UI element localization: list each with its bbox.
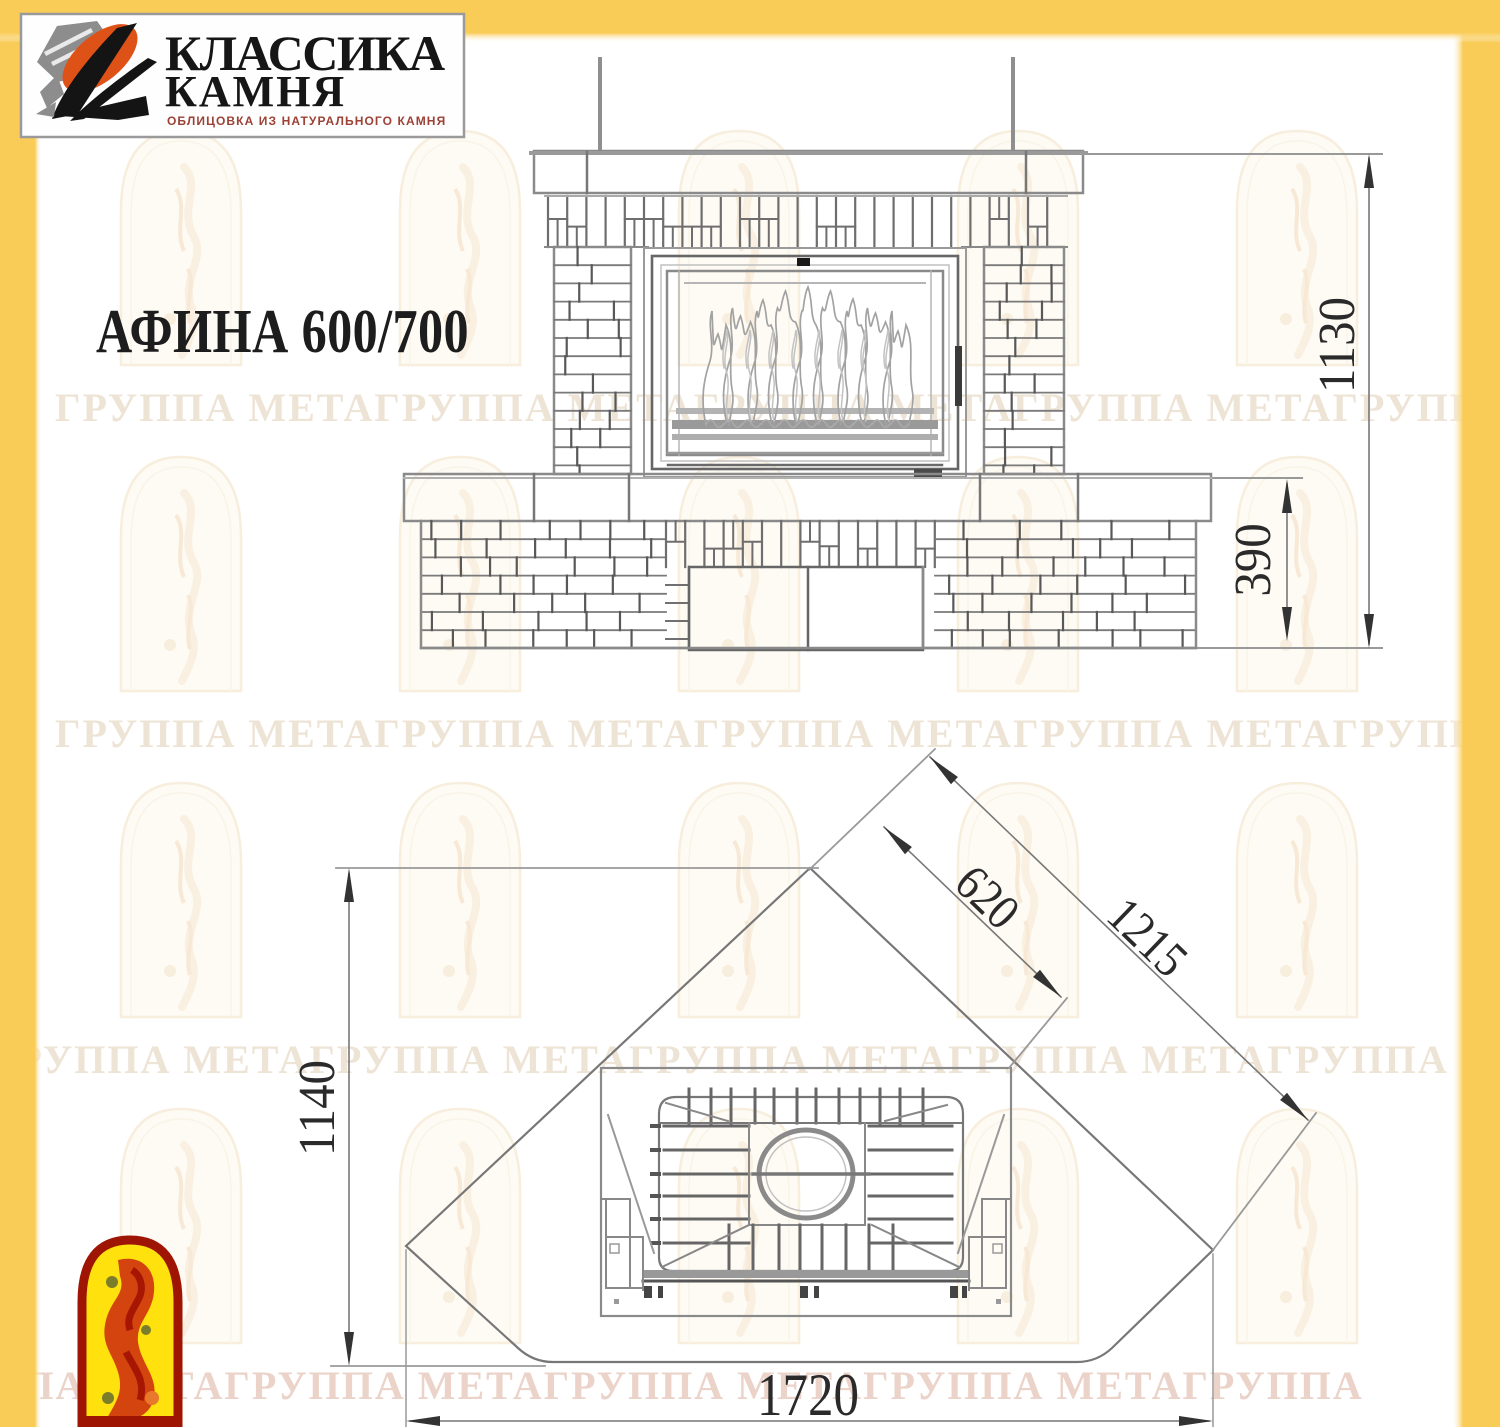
svg-text:1140: 1140 [288, 1060, 346, 1156]
svg-text:КАМНЯ: КАМНЯ [165, 67, 346, 116]
svg-text:1130: 1130 [1308, 297, 1366, 393]
svg-text:ОБЛИЦОВКА ИЗ НАТУРАЛЬНОГО КАМН: ОБЛИЦОВКА ИЗ НАТУРАЛЬНОГО КАМНЯ [167, 114, 446, 128]
svg-text:ГРУППА МЕТАГРУППА МЕТАГРУППА М: ГРУППА МЕТАГРУППА МЕТАГРУППА МЕТАГРУППА … [0, 1037, 1449, 1082]
svg-text:390: 390 [1224, 523, 1282, 596]
svg-text:ГРУППА МЕТАГРУППА МЕТАГРУППА М: ГРУППА МЕТАГРУППА МЕТАГРУППА МЕТАГРУППА … [55, 711, 1500, 756]
svg-text:ГРУППА МЕТАГРУППА МЕТАГРУППА М: ГРУППА МЕТАГРУППА МЕТАГРУППА МЕТАГРУППА … [0, 1363, 1364, 1408]
svg-text:1720: 1720 [757, 1362, 859, 1427]
svg-text:АФИНА 600/700: АФИНА 600/700 [96, 298, 469, 366]
